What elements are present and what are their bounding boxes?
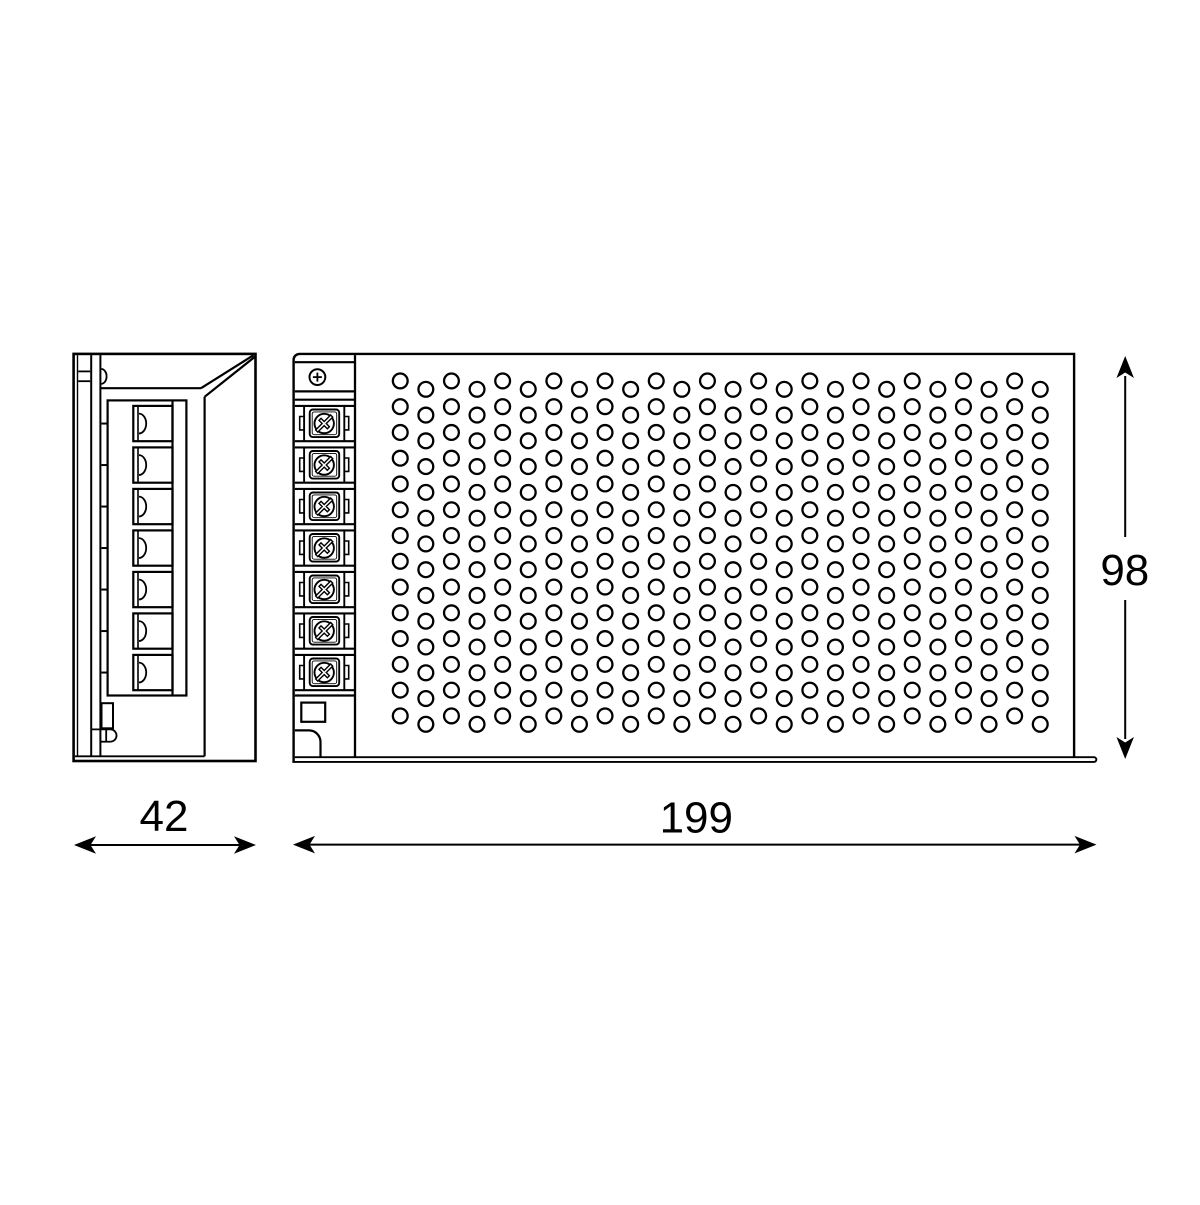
svg-text:42: 42 — [140, 792, 189, 841]
svg-text:199: 199 — [660, 794, 733, 843]
svg-text:98: 98 — [1100, 546, 1149, 595]
